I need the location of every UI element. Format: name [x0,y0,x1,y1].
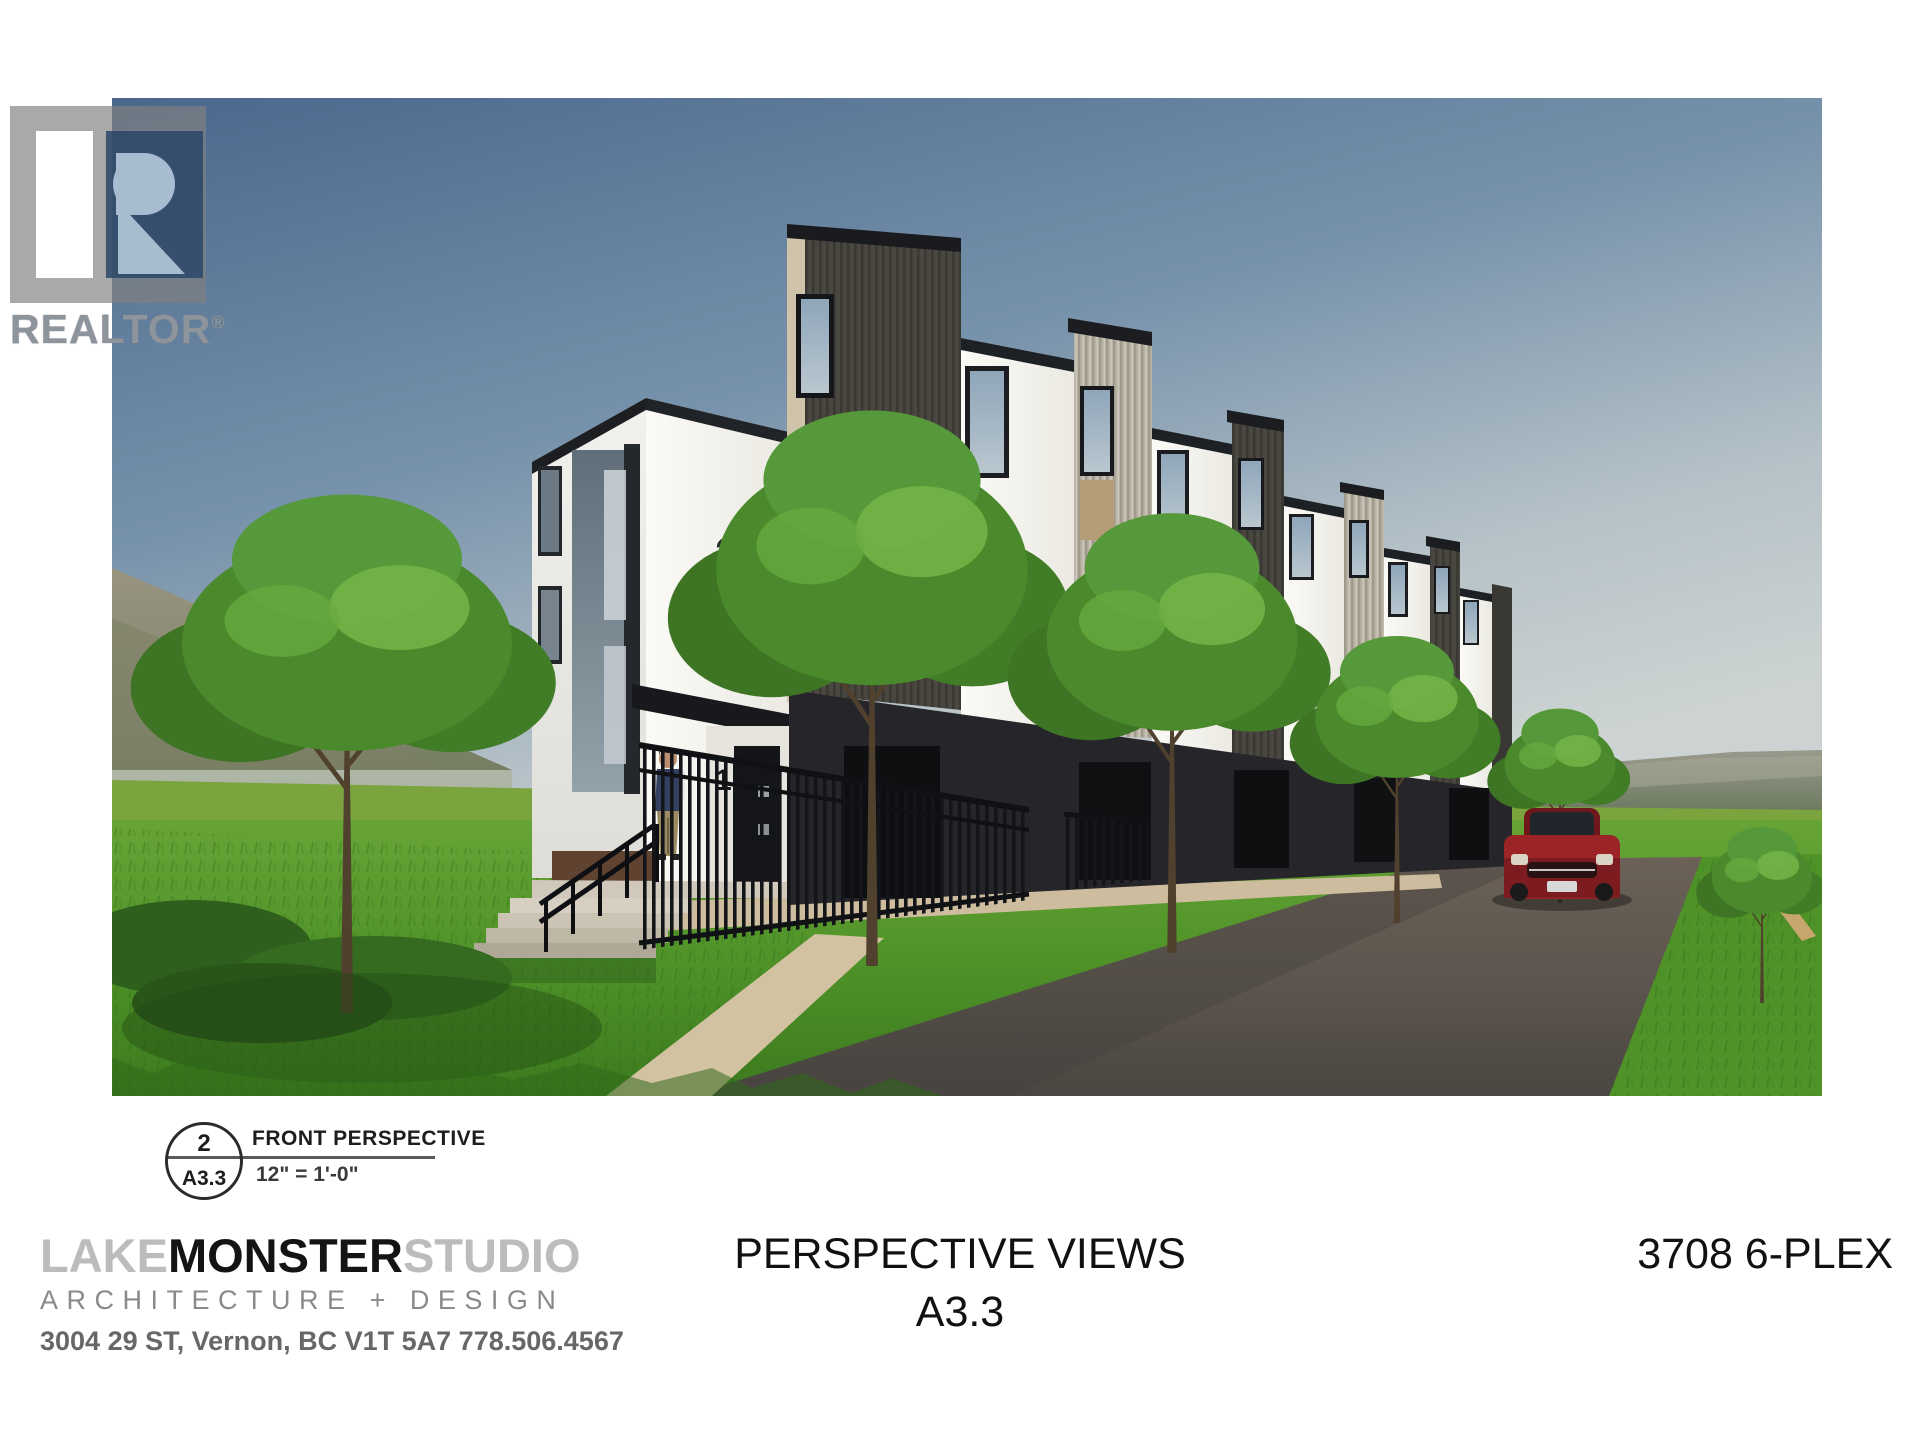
view-callout-bubble: 2 A3.3 [165,1122,243,1200]
realtor-wordmark: REALTOR® [10,306,240,353]
realtor-logo-mark [10,106,240,306]
firm-name-part1: LAKE [40,1229,168,1282]
callout-view-scale: 12" = 1'-0" [256,1163,359,1187]
realtor-logo: REALTOR® [10,106,240,376]
registered-mark: ® [211,312,225,332]
firm-name-part2: MONSTER [168,1229,403,1282]
callout-view-title: FRONT PERSPECTIVE [252,1127,486,1151]
firm-name-part3: STUDIO [403,1229,581,1282]
garage-door-3 [1234,770,1289,868]
sheet-title-block: PERSPECTIVE VIEWS A3.3 [560,1230,1360,1337]
project-name: 3708 6-PLEX [1637,1230,1893,1279]
perspective-rendering: 3708 1 [112,98,1822,1096]
realtor-logo-bar [36,131,93,278]
sheet-number: A3.3 [560,1288,1360,1337]
callout-view-number: 2 [168,1130,240,1158]
garage-door-5 [1449,788,1489,860]
drawing-sheet: 3708 1 [0,0,1920,1440]
rendering-canvas: 3708 1 [112,98,1822,1096]
callout-sheet-ref: A3.3 [168,1167,240,1191]
sheet-title: PERSPECTIVE VIEWS [560,1230,1360,1279]
